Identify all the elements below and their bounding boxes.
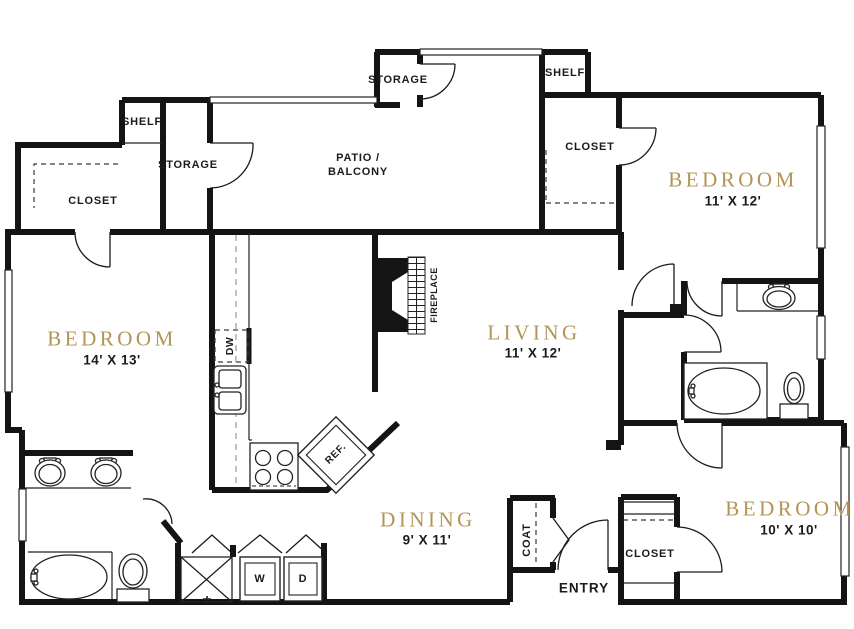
room-dims-bedroom-bottomright: 10' X 10' [760,523,817,538]
shelf-left-label: SHELF [122,116,162,128]
window-right-bath [817,316,825,359]
door-bath-right [684,315,721,352]
balcony-railing-left [210,97,377,103]
floor-plan: BEDROOM 14' X 13' LIVING 11' X 12' DININ… [0,0,854,629]
door-closet-bottom [677,527,722,572]
master-toilet [117,554,149,602]
room-label-bedroom-left: BEDROOM [47,327,177,352]
fireplace [377,257,425,334]
bath-right-sink [763,284,795,310]
door-hall [632,264,674,306]
coat-closet-label: COAT [521,523,533,557]
wall-jamb [670,304,684,318]
patio-line2: BALCONY [328,165,388,179]
closet-left-label: CLOSET [68,195,117,207]
door-master-bath [143,499,172,524]
bifold-washer [238,535,282,553]
dishwasher-label: DW [224,337,236,356]
storage-left-label: STORAGE [158,159,218,171]
bifold-utility [192,535,232,553]
patio-line1: PATIO / [328,151,388,165]
vanity-double-sink [35,458,121,486]
door-closet-right [619,128,656,165]
door-bedroom-left-closet [75,232,110,267]
shelf-right-label: SHELF [545,67,585,79]
wall-post [606,440,621,450]
room-dims-dining: 9' X 11' [403,533,452,548]
room-dims-living: 11' X 12' [505,346,562,361]
bath-right-tub [684,363,767,419]
patio-balcony-label: PATIO / BALCONY [328,151,388,179]
washer-label: W [254,573,265,585]
master-tub [31,555,107,599]
dryer-label: D [299,573,308,585]
room-dims-bedroom-topright: 11' X 12' [705,194,762,209]
door-bedroom-bottom [677,423,722,468]
bifold-coat [553,518,569,562]
balcony-railing-right [420,49,542,55]
room-dims-bedroom-left: 14' X 13' [83,353,140,368]
fireplace-label: FIREPLACE [429,267,439,323]
closet-right-shelf [546,150,617,203]
room-label-dining: DINING [380,508,476,533]
room-label-bedroom-topright: BEDROOM [668,168,798,193]
bath-right-toilet [780,373,808,420]
window-right-bedroom-top [817,126,825,248]
entry-label: ENTRY [559,581,609,596]
door-bedroom-top [687,281,722,316]
storage-patio-label: STORAGE [368,74,428,86]
room-label-bedroom-bottomright: BEDROOM [725,497,854,522]
window-left-bath [19,489,26,541]
window-left-bedroom [5,270,12,392]
utility-closet [181,557,232,603]
closet-right-label: CLOSET [565,141,614,153]
closet-bottom-label: CLOSET [625,548,674,560]
room-label-living: LIVING [487,321,580,346]
bifold-dryer [286,535,326,553]
kitchen-sink [214,366,246,414]
stove [250,443,298,490]
